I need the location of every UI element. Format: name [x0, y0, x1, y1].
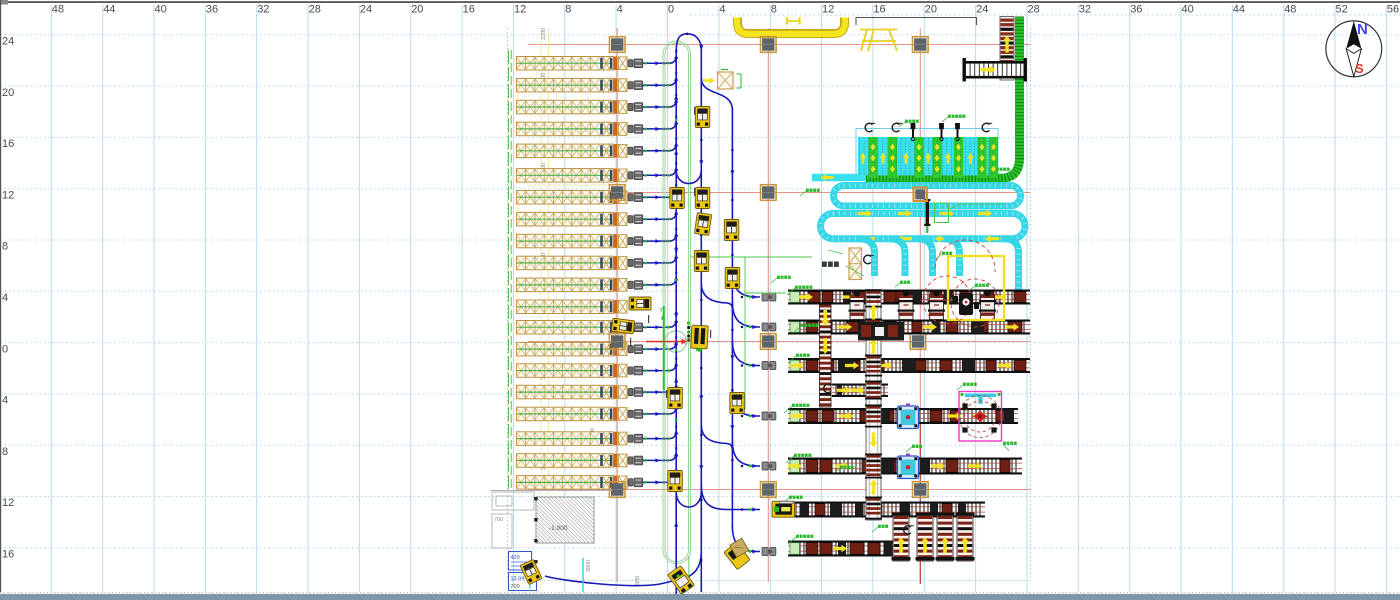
svg-text:44: 44 [103, 4, 115, 16]
svg-text:28: 28 [309, 4, 321, 16]
svg-text:S: S [1355, 61, 1364, 76]
svg-text:20: 20 [411, 4, 423, 16]
svg-text:13.04: 13.04 [511, 576, 525, 582]
svg-text:12: 12 [514, 4, 526, 16]
svg-text:36: 36 [1130, 4, 1142, 16]
svg-text:-1.000: -1.000 [549, 525, 568, 532]
svg-text:20: 20 [925, 4, 937, 16]
svg-text:24: 24 [976, 4, 988, 16]
svg-text:X: X [681, 338, 687, 347]
svg-text:40: 40 [155, 4, 167, 16]
svg-text:24: 24 [2, 36, 14, 48]
svg-text:700: 700 [494, 517, 503, 523]
svg-text:2200: 2200 [541, 28, 547, 40]
svg-text:24: 24 [360, 4, 372, 16]
svg-text:3900: 3900 [586, 560, 592, 572]
svg-text:500: 500 [635, 576, 641, 585]
svg-text:48: 48 [1284, 4, 1296, 16]
svg-text:12: 12 [2, 189, 14, 201]
svg-text:44: 44 [1233, 4, 1245, 16]
svg-text:32: 32 [257, 4, 269, 16]
svg-text:0: 0 [2, 343, 8, 355]
svg-text:16: 16 [873, 4, 885, 16]
svg-text:12: 12 [822, 4, 834, 16]
svg-text:8: 8 [2, 241, 8, 253]
svg-text:4: 4 [617, 4, 623, 16]
svg-text:52: 52 [1336, 4, 1348, 16]
svg-text:4: 4 [2, 292, 8, 304]
svg-text:4: 4 [2, 395, 8, 407]
svg-text:8: 8 [2, 446, 8, 458]
svg-text:12: 12 [2, 497, 14, 509]
svg-text:8: 8 [565, 4, 571, 16]
svg-text:40: 40 [1182, 4, 1194, 16]
svg-text:Y: Y [659, 307, 664, 314]
svg-text:20: 20 [2, 87, 14, 99]
svg-text:700: 700 [511, 584, 520, 590]
svg-text:4: 4 [719, 4, 725, 16]
svg-text:16: 16 [463, 4, 475, 16]
svg-text:420: 420 [511, 555, 520, 561]
svg-text:16: 16 [2, 138, 14, 150]
svg-text:N: N [1357, 21, 1368, 38]
svg-text:32: 32 [1079, 4, 1091, 16]
svg-text:28: 28 [1028, 4, 1040, 16]
svg-text:36: 36 [206, 4, 218, 16]
svg-text:16: 16 [2, 549, 14, 561]
svg-text:0: 0 [668, 4, 674, 16]
svg-text:56: 56 [1387, 4, 1399, 16]
svg-text:48: 48 [52, 4, 64, 16]
svg-text:8: 8 [771, 4, 777, 16]
